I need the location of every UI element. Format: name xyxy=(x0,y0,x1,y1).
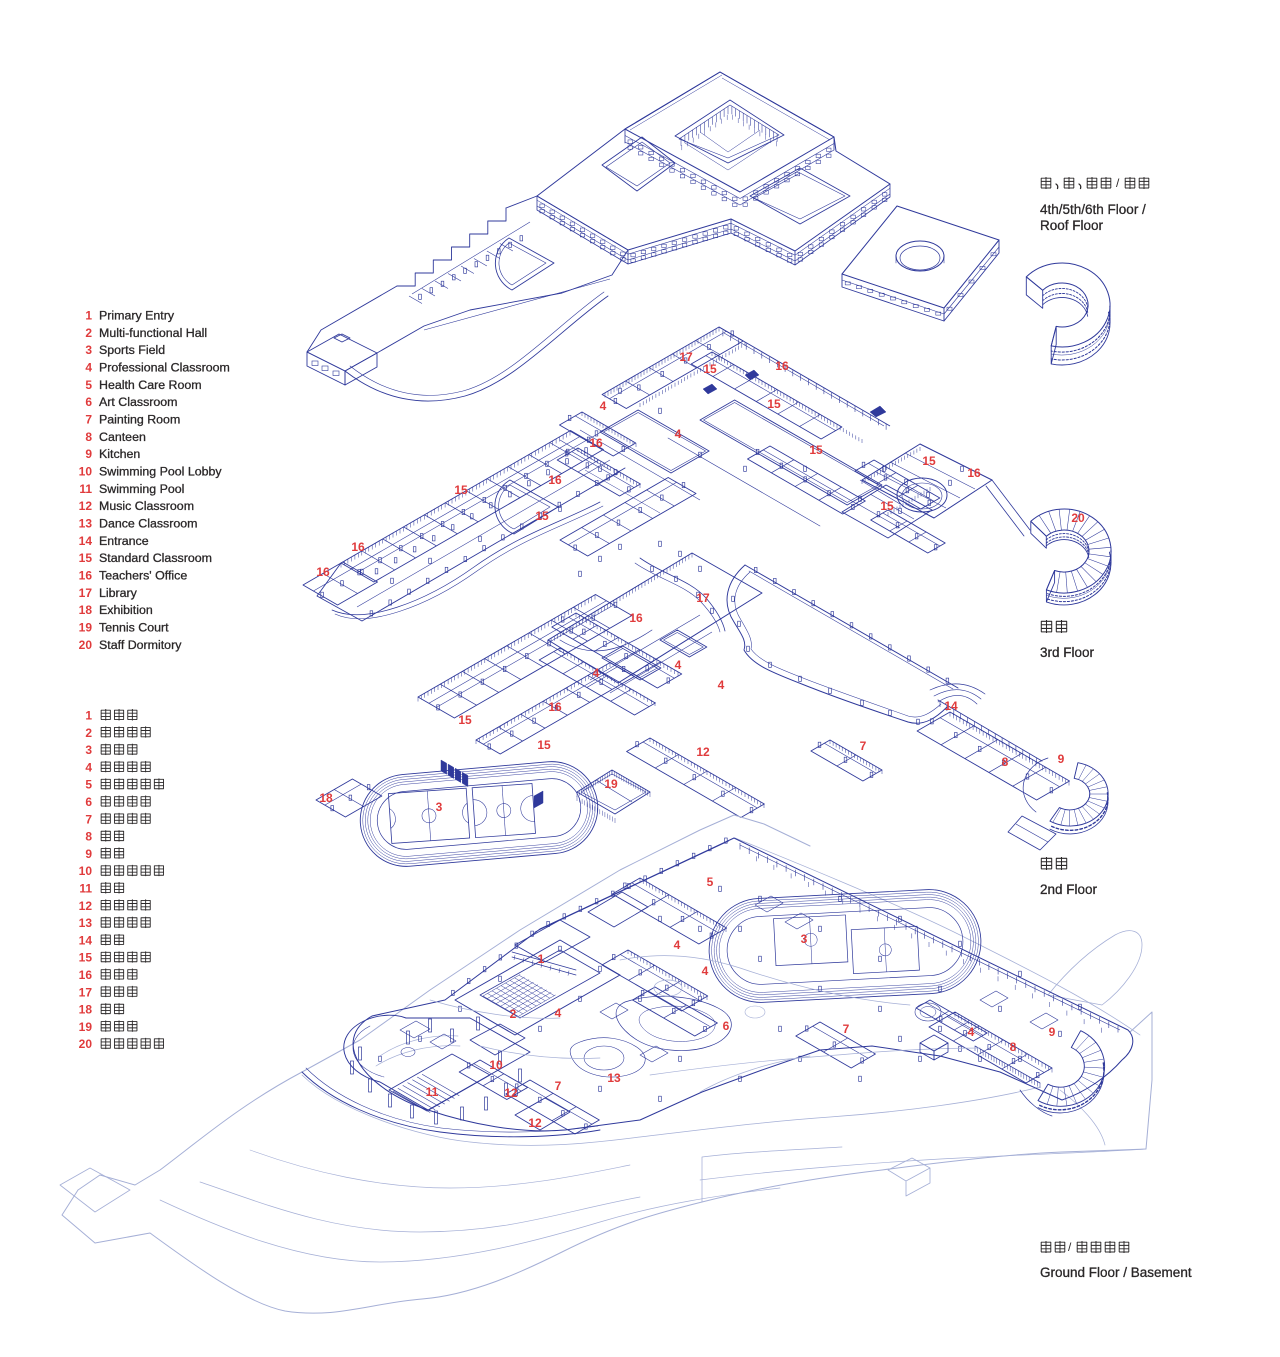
svg-text:Swimming Pool: Swimming Pool xyxy=(99,482,184,496)
svg-text:Multi-functional Hall: Multi-functional Hall xyxy=(99,326,207,340)
svg-text:7: 7 xyxy=(85,412,92,426)
svg-text:1: 1 xyxy=(85,309,92,323)
svg-text:18: 18 xyxy=(79,603,93,617)
svg-text:16: 16 xyxy=(79,968,93,982)
svg-text:14: 14 xyxy=(944,699,958,713)
svg-text:16: 16 xyxy=(775,359,789,373)
svg-text:10: 10 xyxy=(489,1058,503,1072)
svg-text:Kitchen: Kitchen xyxy=(99,447,140,461)
svg-text:2nd Floor: 2nd Floor xyxy=(1040,882,1098,897)
svg-text:3rd Floor: 3rd Floor xyxy=(1040,645,1095,660)
svg-text:Teachers' Office: Teachers' Office xyxy=(99,568,187,582)
svg-text:19: 19 xyxy=(604,777,618,791)
svg-text:12: 12 xyxy=(696,745,710,759)
svg-text:1: 1 xyxy=(538,952,545,966)
svg-text:3: 3 xyxy=(436,800,443,814)
svg-text:11: 11 xyxy=(79,882,92,896)
svg-text:Sports Field: Sports Field xyxy=(99,343,165,357)
svg-text:10: 10 xyxy=(79,464,93,478)
svg-text:16: 16 xyxy=(548,700,562,714)
svg-text:15: 15 xyxy=(880,499,894,513)
svg-text:7: 7 xyxy=(860,739,867,753)
svg-text:1: 1 xyxy=(85,709,92,723)
svg-text:4: 4 xyxy=(85,760,92,774)
svg-text:15: 15 xyxy=(922,454,936,468)
svg-text:15: 15 xyxy=(79,951,93,965)
svg-text:16: 16 xyxy=(629,611,643,625)
svg-text:8: 8 xyxy=(1010,1040,1017,1054)
svg-text:4: 4 xyxy=(593,666,600,680)
svg-text:Health Care Room: Health Care Room xyxy=(99,378,202,392)
svg-text:Dance Classroom: Dance Classroom xyxy=(99,516,197,530)
svg-text:Canteen: Canteen xyxy=(99,430,146,444)
svg-text:10: 10 xyxy=(79,864,93,878)
svg-text:15: 15 xyxy=(535,509,549,523)
svg-text:20: 20 xyxy=(1071,511,1085,525)
svg-text:3: 3 xyxy=(85,743,92,757)
svg-text:4: 4 xyxy=(702,964,709,978)
svg-text:16: 16 xyxy=(79,568,93,582)
svg-text:15: 15 xyxy=(454,483,468,497)
svg-text:6: 6 xyxy=(85,795,92,809)
svg-text:5: 5 xyxy=(707,875,714,889)
svg-text:11: 11 xyxy=(79,482,92,496)
svg-text:4: 4 xyxy=(718,678,725,692)
svg-text:15: 15 xyxy=(809,443,823,457)
svg-text:17: 17 xyxy=(79,586,93,600)
svg-text:Art Classroom: Art Classroom xyxy=(99,395,178,409)
svg-text:7: 7 xyxy=(555,1079,562,1093)
svg-text:Exhibition: Exhibition xyxy=(99,603,153,617)
svg-text:5: 5 xyxy=(85,378,92,392)
svg-text:3: 3 xyxy=(801,932,808,946)
svg-text:16: 16 xyxy=(351,540,365,554)
svg-text:14: 14 xyxy=(79,933,93,947)
svg-text:17: 17 xyxy=(679,350,693,364)
svg-text:13: 13 xyxy=(79,916,93,930)
svg-text:8: 8 xyxy=(85,830,92,844)
svg-text:19: 19 xyxy=(79,1020,93,1034)
svg-text:18: 18 xyxy=(79,1003,93,1017)
svg-text:6: 6 xyxy=(85,395,92,409)
svg-text:12: 12 xyxy=(504,1086,518,1100)
svg-text:11: 11 xyxy=(426,1085,439,1099)
svg-text:Swimming Pool Lobby: Swimming Pool Lobby xyxy=(99,464,222,478)
svg-text:9: 9 xyxy=(85,847,92,861)
svg-text:12: 12 xyxy=(528,1116,542,1130)
svg-text:7: 7 xyxy=(843,1022,850,1036)
svg-text:17: 17 xyxy=(79,985,93,999)
svg-text:4: 4 xyxy=(600,399,607,413)
svg-text:Ground Floor / Basement: Ground Floor / Basement xyxy=(1040,1265,1192,1280)
svg-text:13: 13 xyxy=(607,1071,621,1085)
svg-text:16: 16 xyxy=(316,565,330,579)
svg-text:4: 4 xyxy=(85,360,92,374)
svg-text:Painting Room: Painting Room xyxy=(99,412,180,426)
svg-text:13: 13 xyxy=(79,516,93,530)
svg-text:20: 20 xyxy=(79,638,93,652)
svg-text:2: 2 xyxy=(85,326,92,340)
svg-text:4: 4 xyxy=(674,938,681,952)
svg-text:9: 9 xyxy=(1049,1025,1056,1039)
svg-text:15: 15 xyxy=(537,738,551,752)
svg-text:5: 5 xyxy=(85,778,92,792)
svg-text:8: 8 xyxy=(1002,755,1009,769)
svg-text:14: 14 xyxy=(79,534,93,548)
svg-text:12: 12 xyxy=(79,899,93,913)
svg-text:20: 20 xyxy=(79,1037,93,1051)
svg-text:15: 15 xyxy=(458,713,472,727)
svg-text:15: 15 xyxy=(703,362,717,376)
svg-text:Roof Floor: Roof Floor xyxy=(1040,218,1104,233)
svg-text:4: 4 xyxy=(968,1025,975,1039)
svg-text:16: 16 xyxy=(548,473,562,487)
svg-text:Standard Classroom: Standard Classroom xyxy=(99,551,212,565)
svg-text:2: 2 xyxy=(510,1007,517,1021)
svg-text:Professional Classroom: Professional Classroom xyxy=(99,360,230,374)
svg-text:16: 16 xyxy=(589,436,603,450)
svg-text:Library: Library xyxy=(99,586,138,600)
svg-text:Music Classroom: Music Classroom xyxy=(99,499,194,513)
svg-text:4th/5th/6th Floor /: 4th/5th/6th Floor / xyxy=(1040,202,1146,217)
svg-text:4: 4 xyxy=(555,1006,562,1020)
svg-text:16: 16 xyxy=(967,466,981,480)
svg-text:3: 3 xyxy=(85,343,92,357)
svg-text:6: 6 xyxy=(723,1019,730,1033)
svg-text:2: 2 xyxy=(85,726,92,740)
svg-text:12: 12 xyxy=(79,499,93,513)
svg-text:4: 4 xyxy=(675,427,682,441)
svg-text:9: 9 xyxy=(1058,752,1065,766)
svg-text:9: 9 xyxy=(85,447,92,461)
svg-text:15: 15 xyxy=(767,397,781,411)
svg-text:Tennis Court: Tennis Court xyxy=(99,620,169,634)
svg-text:19: 19 xyxy=(79,620,93,634)
svg-text:15: 15 xyxy=(79,551,93,565)
svg-text:Staff Dormitory: Staff Dormitory xyxy=(99,638,182,652)
svg-text:Primary Entry: Primary Entry xyxy=(99,309,175,323)
svg-text:8: 8 xyxy=(85,430,92,444)
svg-text:7: 7 xyxy=(85,812,92,826)
svg-text:18: 18 xyxy=(319,791,333,805)
svg-text:Entrance: Entrance xyxy=(99,534,149,548)
svg-text:17: 17 xyxy=(696,591,710,605)
svg-text:4: 4 xyxy=(675,658,682,672)
